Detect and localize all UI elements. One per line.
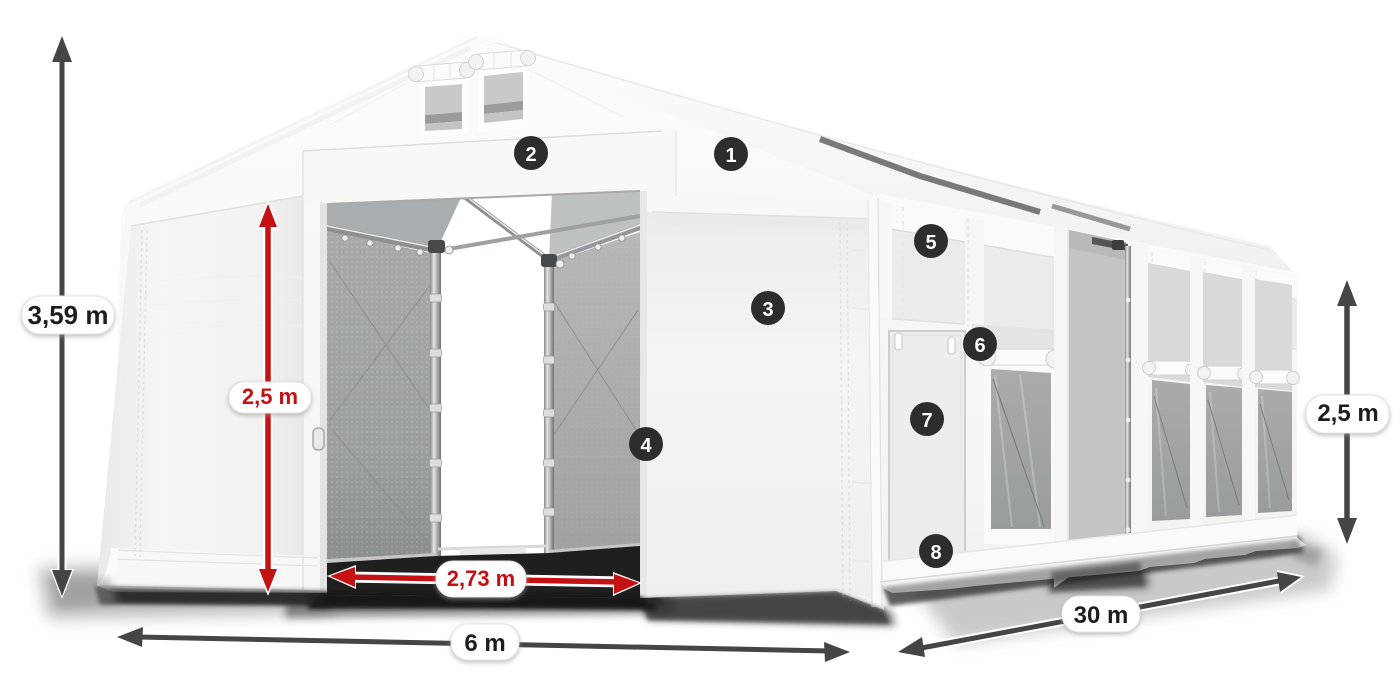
svg-text:2: 2	[525, 144, 536, 166]
svg-text:3: 3	[762, 299, 773, 321]
svg-text:7: 7	[921, 410, 932, 432]
svg-text:2,5 m: 2,5 m	[242, 384, 298, 409]
svg-text:3,59 m: 3,59 m	[28, 300, 109, 330]
svg-text:2,73 m: 2,73 m	[447, 566, 516, 591]
svg-text:1: 1	[725, 145, 736, 167]
svg-text:6 m: 6 m	[464, 630, 505, 657]
svg-text:30 m: 30 m	[1074, 602, 1129, 629]
svg-text:4: 4	[640, 435, 652, 457]
svg-text:2,5 m: 2,5 m	[1317, 400, 1378, 427]
svg-text:8: 8	[930, 542, 941, 564]
svg-text:6: 6	[974, 335, 985, 357]
svg-text:5: 5	[925, 232, 936, 254]
